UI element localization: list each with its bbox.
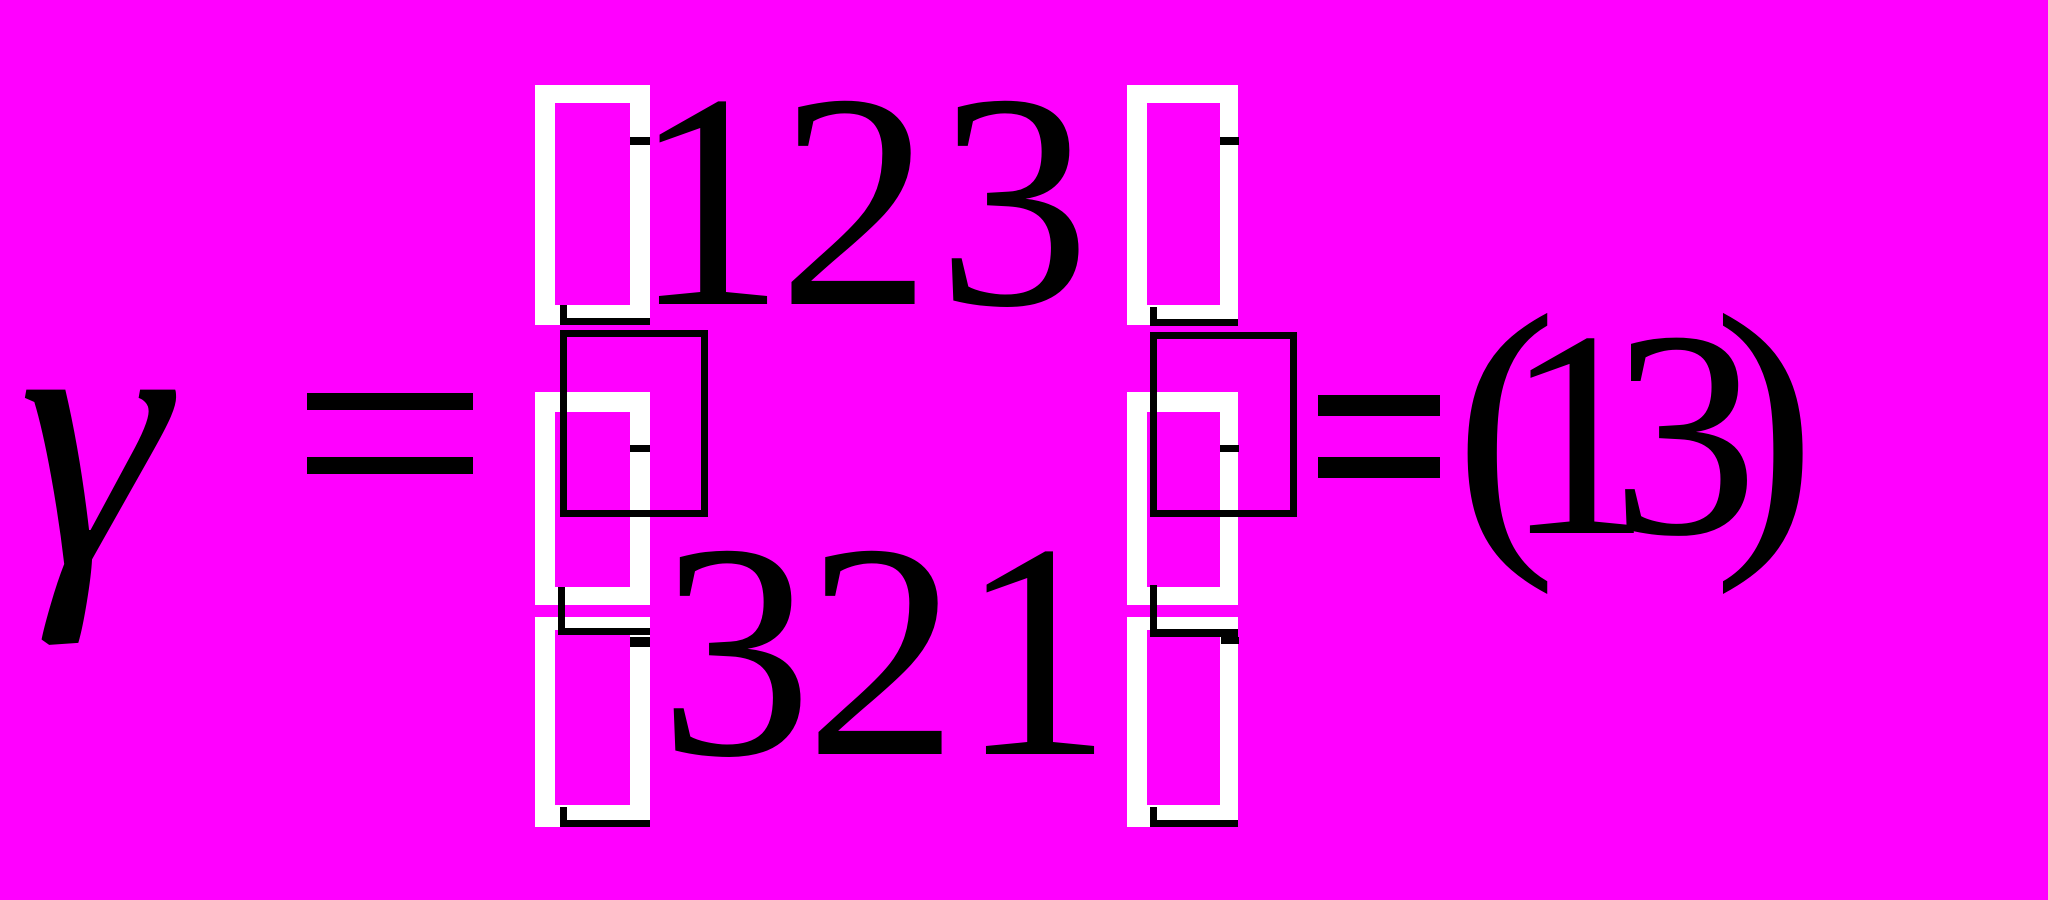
equation-canvas: γ 1 2 3 3 2 1 [0, 0, 2048, 900]
notdef-corner2-foot [558, 628, 650, 635]
notdef-tick-middle [630, 445, 650, 452]
notdef-box-white-bottom [1127, 617, 1238, 827]
equals-top-bar [1318, 395, 1440, 416]
equals-bottom-bar [307, 457, 473, 474]
matrix-digit: 2 [805, 498, 959, 805]
matrix-digit: 1 [632, 48, 786, 355]
notdef-corner1-foot [1150, 319, 1238, 326]
matrix-digit: 3 [937, 48, 1091, 355]
notdef-corner2-tick [1221, 637, 1239, 644]
matrix-digit: 2 [778, 48, 932, 355]
notdef-corner2-foot [1150, 629, 1238, 637]
notdef-corner3-foot [560, 820, 650, 827]
notdef-corner2-tick [630, 637, 650, 647]
matrix-digit: 3 [659, 498, 813, 805]
notdef-corner3-foot [1150, 820, 1238, 827]
notdef-box-black-outline [1150, 332, 1297, 517]
notdef-box-white-bottom [535, 617, 650, 827]
notdef-tick-top [1220, 137, 1239, 145]
gamma-symbol: γ [18, 247, 168, 627]
notdef-corner2-vertical [1150, 585, 1157, 635]
notdef-box-white-top [1127, 85, 1238, 325]
matrix-digit: 1 [959, 498, 1113, 805]
equals-top-bar [307, 393, 473, 410]
equals-bottom-bar [1318, 457, 1440, 478]
notdef-tick-middle [1220, 445, 1239, 452]
close-paren: ) [1713, 270, 1816, 580]
